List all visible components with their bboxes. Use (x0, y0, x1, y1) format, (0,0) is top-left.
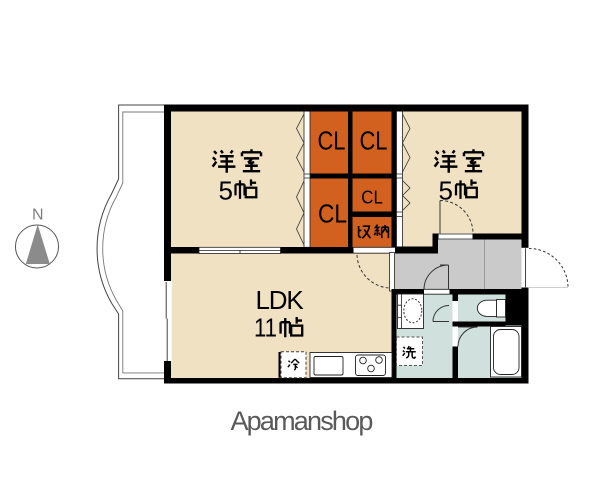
svg-text:CL: CL (318, 201, 347, 229)
svg-text:CL: CL (360, 128, 388, 156)
svg-text:Apamanshop: Apamanshop (230, 406, 372, 436)
svg-text:11: 11 (254, 313, 277, 343)
svg-text:CL: CL (361, 188, 383, 208)
svg-text:CL: CL (318, 128, 346, 156)
svg-text:5: 5 (219, 176, 233, 206)
svg-text:N: N (32, 207, 44, 224)
svg-text:LDK: LDK (256, 285, 305, 315)
svg-text:5: 5 (439, 176, 453, 206)
